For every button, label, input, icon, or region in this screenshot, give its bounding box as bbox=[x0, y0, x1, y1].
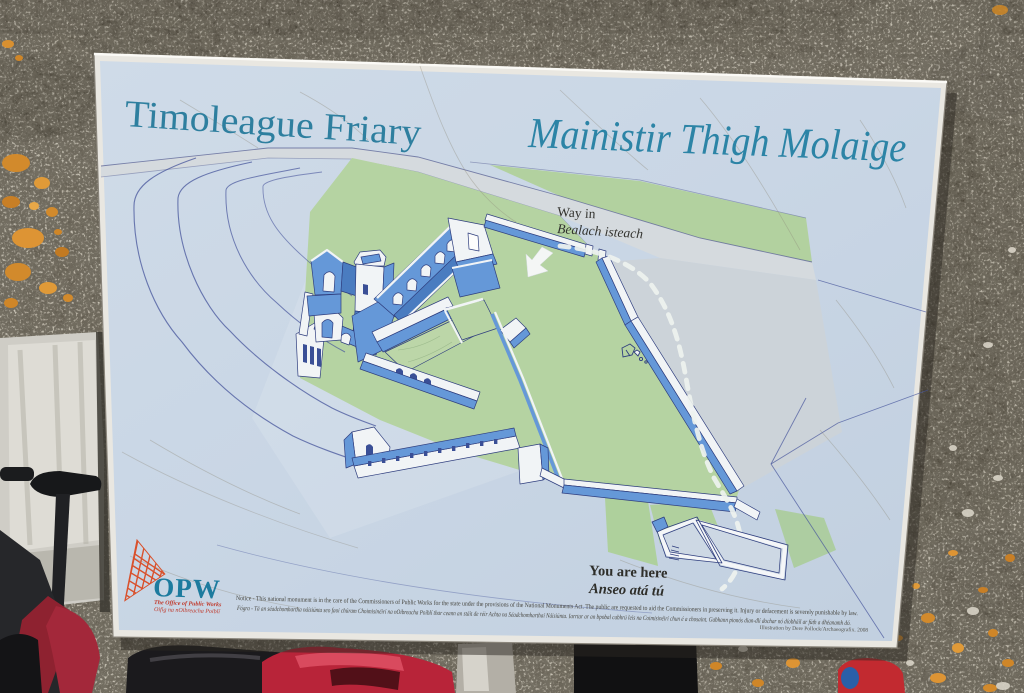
svg-text:Way in: Way in bbox=[557, 204, 596, 221]
svg-text:Anseo atá tú: Anseo atá tú bbox=[588, 581, 664, 600]
svg-text:You are here: You are here bbox=[589, 563, 668, 582]
